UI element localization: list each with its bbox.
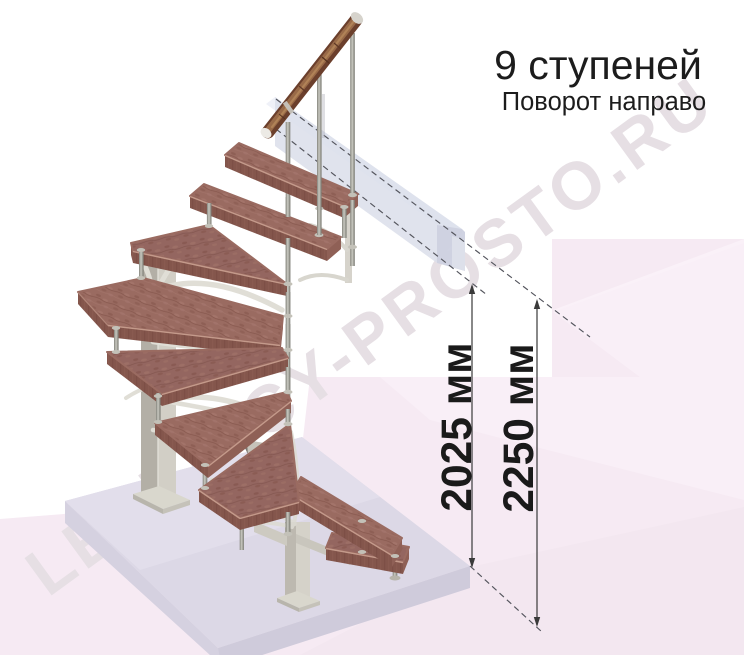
svg-text:9 ступеней: 9 ступеней [494, 42, 702, 88]
svg-text:2025 мм: 2025 мм [434, 342, 481, 511]
svg-text:Поворот направо: Поворот направо [502, 88, 706, 116]
svg-text:2250 мм: 2250 мм [496, 343, 543, 512]
